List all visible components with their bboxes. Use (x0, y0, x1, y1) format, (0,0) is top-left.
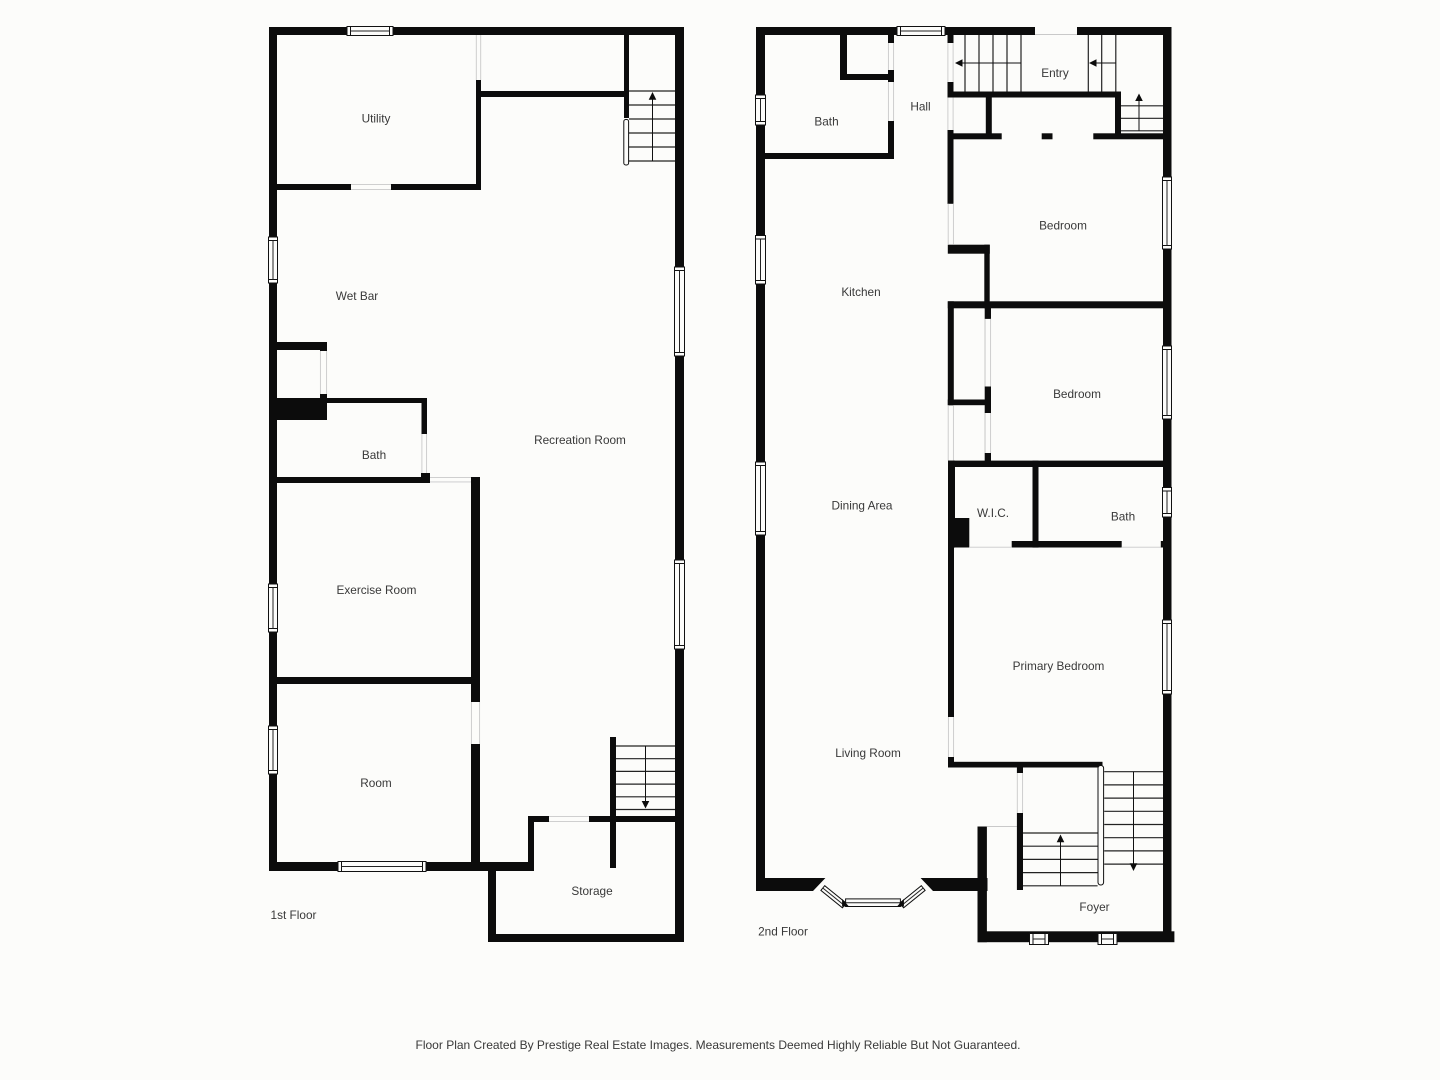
svg-text:Bedroom: Bedroom (1053, 387, 1101, 401)
svg-text:1st Floor: 1st Floor (271, 908, 317, 922)
svg-text:W.I.C.: W.I.C. (977, 506, 1009, 520)
svg-text:Dining Area: Dining Area (832, 499, 893, 513)
svg-text:Recreation Room: Recreation Room (534, 433, 626, 447)
svg-text:Foyer: Foyer (1079, 900, 1109, 914)
svg-text:Bath: Bath (362, 448, 386, 462)
svg-text:Wet Bar: Wet Bar (336, 289, 378, 303)
svg-text:Living Room: Living Room (835, 746, 901, 760)
svg-text:Bedroom: Bedroom (1039, 219, 1087, 233)
svg-text:Kitchen: Kitchen (841, 285, 880, 299)
svg-text:Utility: Utility (362, 112, 391, 126)
svg-text:Room: Room (360, 776, 392, 790)
svg-text:Hall: Hall (910, 100, 930, 114)
svg-text:Primary Bedroom: Primary Bedroom (1013, 659, 1105, 673)
svg-text:Bath: Bath (814, 115, 838, 129)
svg-text:Floor Plan Created By Prestige: Floor Plan Created By Prestige Real Esta… (416, 1038, 1021, 1052)
svg-text:Bath: Bath (1111, 510, 1135, 524)
svg-text:Entry: Entry (1041, 66, 1069, 80)
svg-text:Storage: Storage (571, 884, 613, 898)
svg-text:Exercise Room: Exercise Room (337, 583, 417, 597)
svg-text:2nd Floor: 2nd Floor (758, 925, 808, 939)
